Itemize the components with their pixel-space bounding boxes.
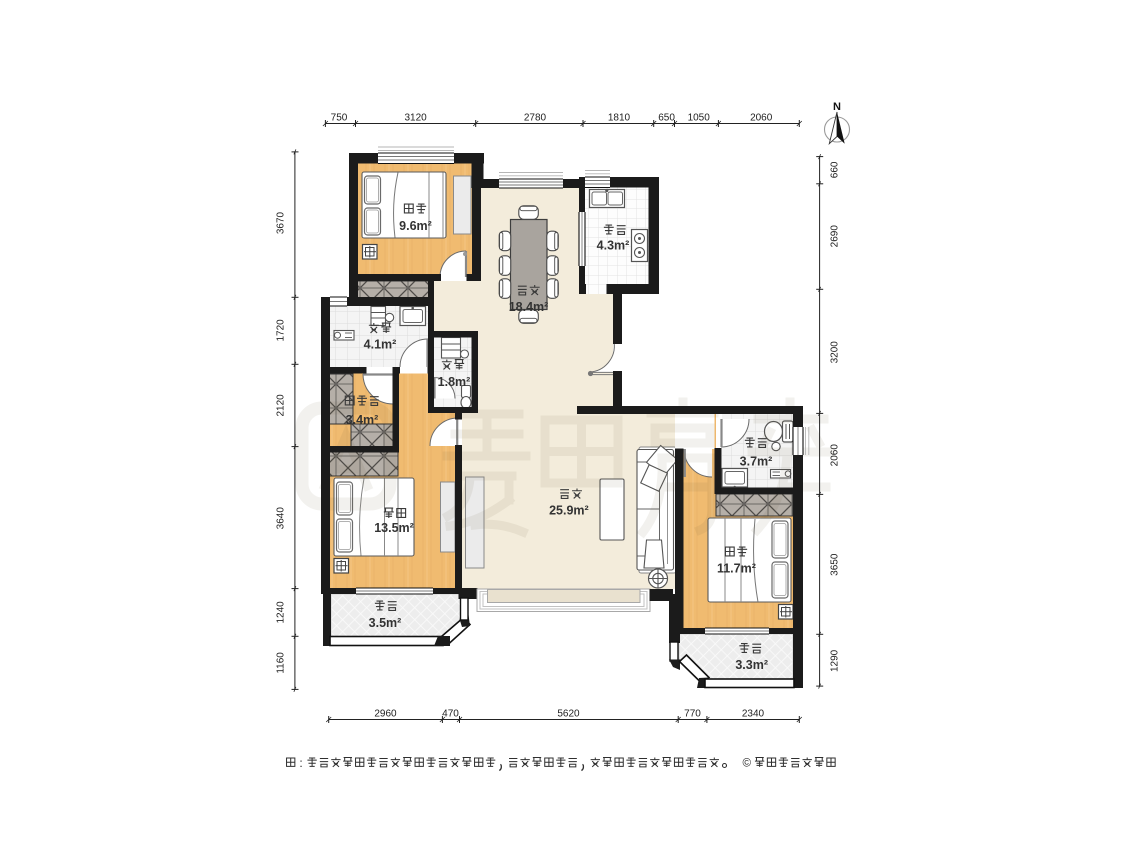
svg-text:1050: 1050 [688, 112, 711, 123]
svg-text:2060: 2060 [830, 444, 841, 467]
svg-text:660: 660 [830, 161, 841, 178]
svg-text:2060: 2060 [750, 112, 773, 123]
svg-text:1290: 1290 [830, 649, 841, 672]
svg-text:4.3m²: 4.3m² [597, 239, 630, 253]
svg-text:3670: 3670 [276, 211, 287, 234]
svg-text:470: 470 [442, 709, 459, 720]
svg-text:3.7m²: 3.7m² [740, 455, 773, 469]
svg-text:2340: 2340 [742, 709, 765, 720]
svg-text:2780: 2780 [524, 112, 547, 123]
svg-text:4.1m²: 4.1m² [364, 338, 397, 352]
svg-text:1240: 1240 [276, 601, 287, 624]
svg-text:2690: 2690 [830, 225, 841, 248]
svg-text:1720: 1720 [276, 319, 287, 342]
svg-text:3.4m²: 3.4m² [346, 413, 379, 427]
svg-text:3120: 3120 [404, 112, 427, 123]
svg-text:11.7m²: 11.7m² [717, 562, 756, 576]
svg-text:3.3m²: 3.3m² [735, 658, 768, 672]
svg-text:25.9m²: 25.9m² [549, 504, 589, 518]
svg-text:18.4m²: 18.4m² [509, 300, 549, 314]
svg-text:3640: 3640 [276, 507, 287, 530]
svg-text:2960: 2960 [374, 709, 397, 720]
svg-text:©: © [743, 758, 752, 770]
svg-text:770: 770 [684, 709, 701, 720]
svg-text:13.5m²: 13.5m² [374, 521, 414, 535]
svg-text:750: 750 [331, 112, 348, 123]
svg-text:1160: 1160 [276, 652, 287, 674]
svg-text:3200: 3200 [830, 341, 841, 364]
svg-text:3.5m²: 3.5m² [369, 616, 402, 630]
svg-text:2120: 2120 [276, 394, 287, 417]
svg-text:9.6m²: 9.6m² [399, 219, 432, 233]
svg-text:1810: 1810 [608, 112, 631, 123]
svg-text:5620: 5620 [557, 709, 580, 720]
svg-text:650: 650 [658, 112, 675, 123]
svg-text:3650: 3650 [830, 553, 841, 576]
svg-text:1.8m²: 1.8m² [438, 375, 471, 389]
svg-text::: : [299, 756, 302, 770]
svg-text:N: N [833, 101, 841, 113]
